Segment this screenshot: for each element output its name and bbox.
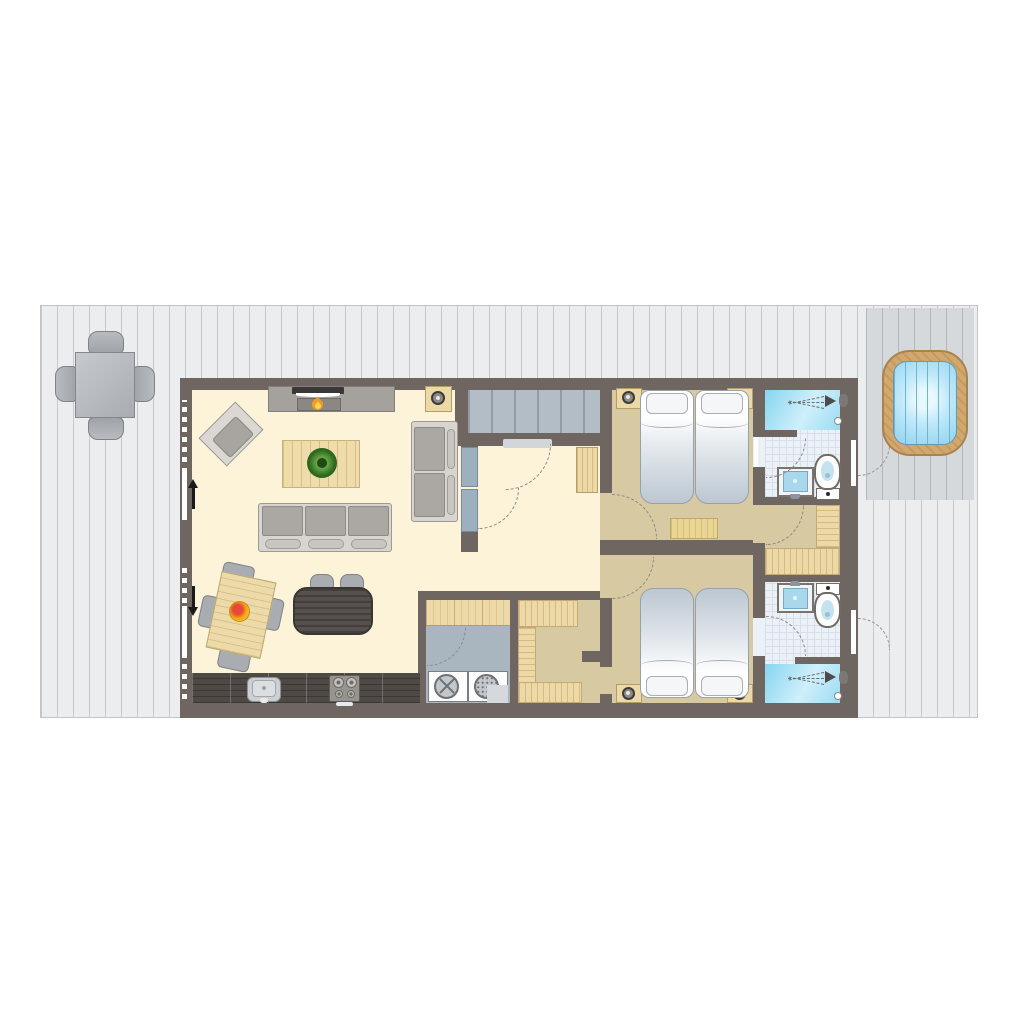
loveseat-cushion-2	[414, 473, 445, 517]
bed1-lamp-left-dot	[626, 395, 630, 399]
bathroom2-toilet-drain	[825, 612, 830, 617]
utility-closet-top-wall	[418, 591, 600, 600]
bed2-fold-left	[641, 660, 693, 670]
arrow-down-stem	[192, 586, 195, 608]
burner-bottom-left	[335, 690, 343, 698]
walkin-wall-stub	[582, 651, 600, 662]
outdoor-chair-top	[88, 331, 124, 354]
outdoor-chair-bottom	[88, 417, 124, 440]
loveseat-pad-1	[447, 429, 455, 469]
shower1-head-icon	[825, 395, 836, 407]
bathroom1-door-leaf	[754, 437, 758, 467]
linen-shelf-bottom	[765, 548, 840, 575]
kitchen-sink-drain	[262, 686, 266, 690]
bathroom1-toilet-drain	[825, 473, 830, 478]
burner-top-left	[333, 677, 344, 688]
bathroom1-toilet-dot	[826, 492, 830, 496]
oven-handle	[336, 702, 353, 706]
burner-top-right	[346, 677, 357, 688]
shower1-drain	[834, 417, 842, 425]
arrow-up-stem	[192, 487, 195, 509]
sliding-door-leaf-1	[182, 468, 187, 520]
sliding-door-track-3	[182, 661, 187, 699]
bed1-fold-left	[641, 418, 693, 428]
kitchen-sink-tap	[260, 698, 268, 703]
floor-plan	[0, 0, 1024, 1024]
arrow-down-head	[188, 607, 198, 616]
bathroom2-door-gap	[753, 618, 765, 656]
arrow-up-head	[188, 479, 198, 488]
hot-tub-water	[893, 361, 957, 445]
hall-cabinet-upper	[461, 447, 478, 487]
walkin-closet-opening	[600, 667, 612, 694]
shower2-stub-wall	[795, 657, 840, 664]
linen-shelf-right	[816, 505, 840, 548]
bathroom2-toilet-dot	[826, 586, 830, 590]
linen-closet-door-gap	[753, 505, 765, 543]
bed1-fold-right	[696, 418, 748, 428]
hall-wall-stub	[461, 532, 478, 552]
sofa-cushion-1	[262, 506, 303, 536]
bathroom1-toilet-seat	[819, 459, 836, 483]
sofa-pad-1	[265, 539, 301, 549]
bed2-pillow-right	[701, 676, 743, 696]
bed1-bench	[670, 518, 718, 539]
utility-right-wall	[510, 600, 518, 703]
shower2-head-icon	[825, 671, 836, 683]
bathroom2-sink-tap	[790, 581, 800, 586]
utility-mat	[487, 685, 508, 703]
walkin-shelf-top	[518, 600, 578, 627]
burner-bottom-right	[347, 690, 355, 698]
sliding-door-track-1	[182, 400, 187, 462]
kitchen-counter	[192, 673, 420, 703]
walkin-shelf-left	[518, 627, 536, 684]
living-side-lamp-dot	[436, 396, 440, 400]
window-right-2	[851, 610, 856, 654]
bathroom2-sink-drain	[793, 596, 797, 600]
kitchen-island	[293, 587, 373, 635]
outdoor-chair-right	[132, 366, 155, 402]
sofa-cushion-2	[305, 506, 346, 536]
sofa-cushion-3	[348, 506, 389, 536]
utility-top-cabinet	[426, 600, 510, 626]
bathroom1-sink-tap	[790, 494, 800, 499]
sliding-door-track-2	[182, 563, 187, 603]
shower1-head-mount	[839, 394, 848, 407]
bed1-pillow-left	[646, 393, 688, 414]
hall-wall-top-piece	[461, 433, 478, 447]
outdoor-table	[75, 352, 135, 418]
hall-wood-cabinet	[576, 447, 598, 493]
loveseat-pad-2	[447, 475, 455, 515]
shower1-stub-wall	[765, 430, 797, 437]
loveseat-cushion-1	[414, 427, 445, 471]
sofa-pad-3	[351, 539, 387, 549]
bed1-pillow-right	[701, 393, 743, 414]
shower2-drain	[834, 692, 842, 700]
bed2-lamp-left-dot	[626, 691, 630, 695]
fruit-bowl	[229, 601, 250, 622]
bathroom1-sink-drain	[793, 479, 797, 483]
bedrooms-divider-wall	[612, 540, 753, 555]
bed2-fold-right	[696, 660, 748, 670]
walkin-shelf-bottom	[518, 682, 582, 703]
window-right-1	[851, 440, 856, 486]
shower2-floor	[765, 664, 840, 703]
plant-center	[317, 458, 327, 468]
entrance-porch-floor	[468, 390, 600, 433]
bathroom2-toilet-seat	[819, 598, 836, 622]
bedroom1-door-gap	[600, 493, 612, 540]
closet-bath2-wall	[765, 575, 840, 582]
shower2-head-mount	[839, 671, 848, 684]
hall-cabinet-lower	[461, 489, 478, 532]
bed2-pillow-left	[646, 676, 688, 696]
bedroom2-door-gap	[600, 555, 612, 598]
sofa-pad-2	[308, 539, 344, 549]
sliding-door-leaf-2	[182, 606, 187, 658]
